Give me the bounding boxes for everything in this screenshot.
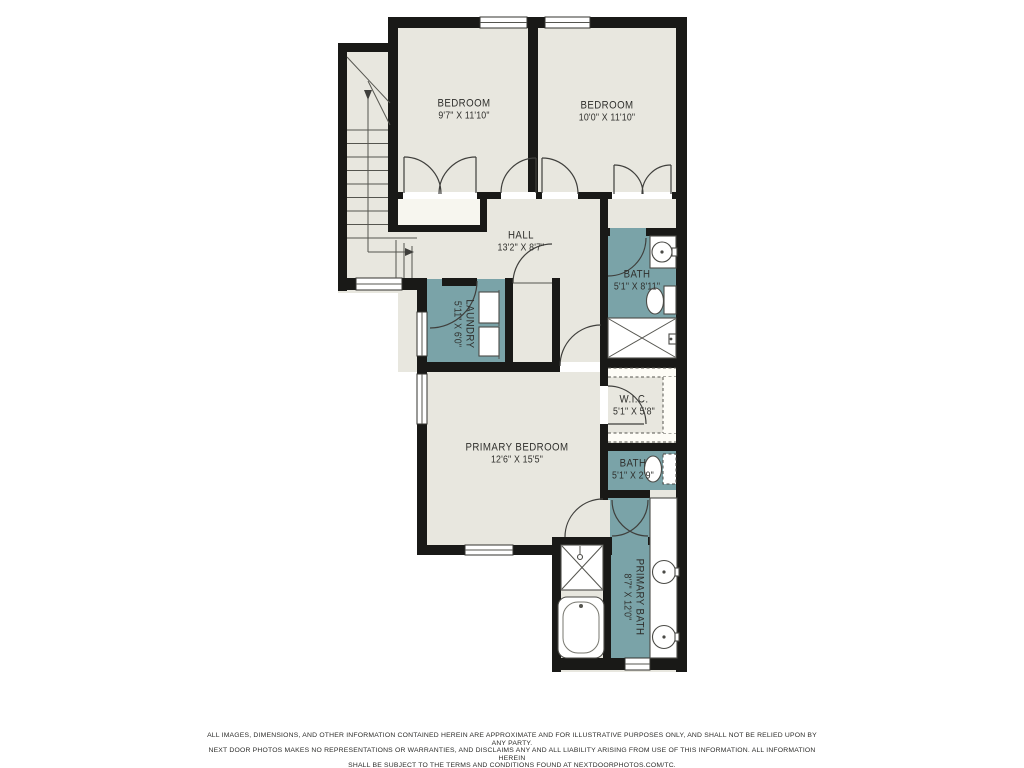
bath-sink: [650, 236, 677, 268]
floor-plan-drawing: [0, 0, 1024, 768]
disclaimer-text: ALL IMAGES, DIMENSIONS, AND OTHER INFORM…: [202, 732, 822, 768]
room-label-laundry: LAUNDRY 5'11" X 6'0": [451, 299, 476, 348]
primary-vanity: [650, 498, 679, 658]
room-label-primary-bedroom: PRIMARY BEDROOM 12'6" X 15'5": [465, 442, 568, 467]
bath-shower: [608, 318, 676, 358]
bathtub: [558, 597, 604, 658]
room-label-bedroom-left: BEDROOM 9'7" X 11'10": [437, 98, 490, 123]
room-label-bedroom-right: BEDROOM 10'0" X 11'10": [579, 100, 635, 125]
room-label-wic: W.I.C. 5'1" X 5'8": [613, 394, 655, 419]
room-label-bath-small: BATH 5'1" X 2'9": [612, 458, 654, 483]
room-label-bath: BATH 5'1" X 8'11": [614, 269, 660, 294]
room-label-hall: HALL 13'2" X 8'7": [498, 230, 545, 255]
primary-shower: [561, 545, 603, 590]
room-label-primary-bath: PRIMARY BATH 8'7" X 12'0": [621, 559, 646, 636]
floor-plan-canvas: BEDROOM 9'7" X 11'10" BEDROOM 10'0" X 11…: [0, 0, 1024, 768]
